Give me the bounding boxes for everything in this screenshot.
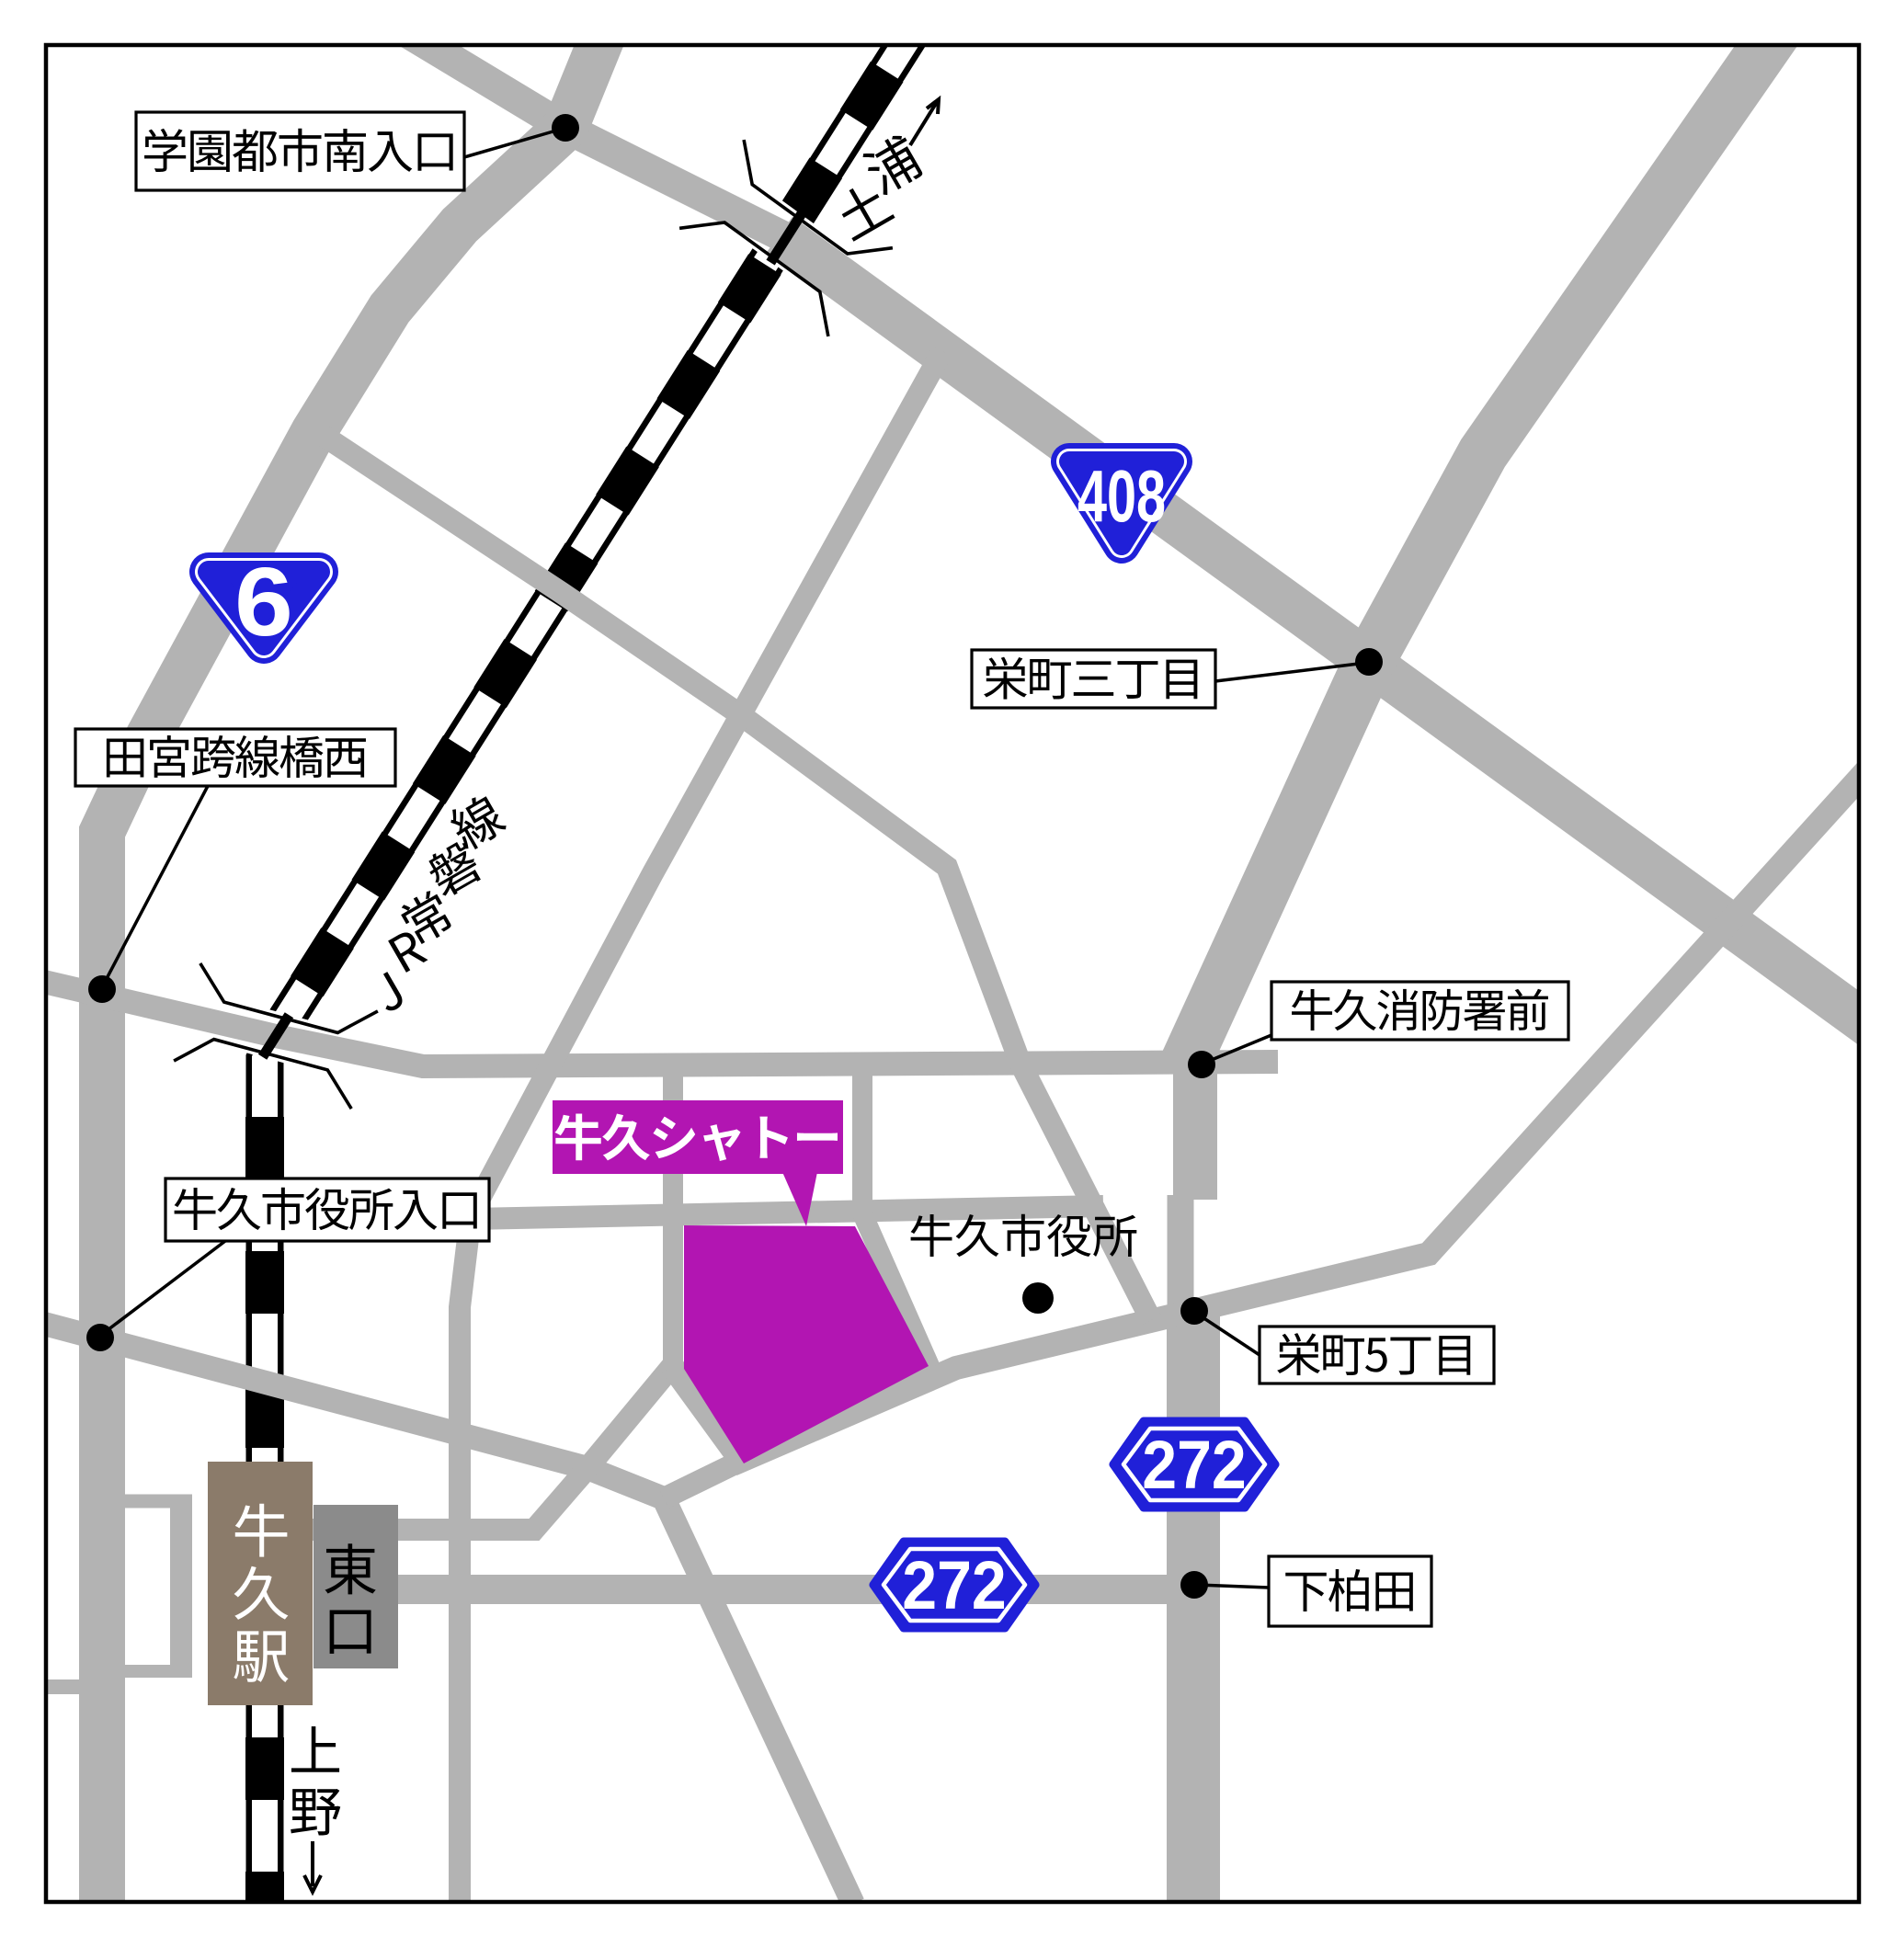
svg-text:6: 6 [234,548,293,656]
svg-text:272: 272 [1142,1428,1247,1503]
svg-text:272: 272 [902,1548,1007,1623]
svg-text:408: 408 [1077,455,1166,538]
